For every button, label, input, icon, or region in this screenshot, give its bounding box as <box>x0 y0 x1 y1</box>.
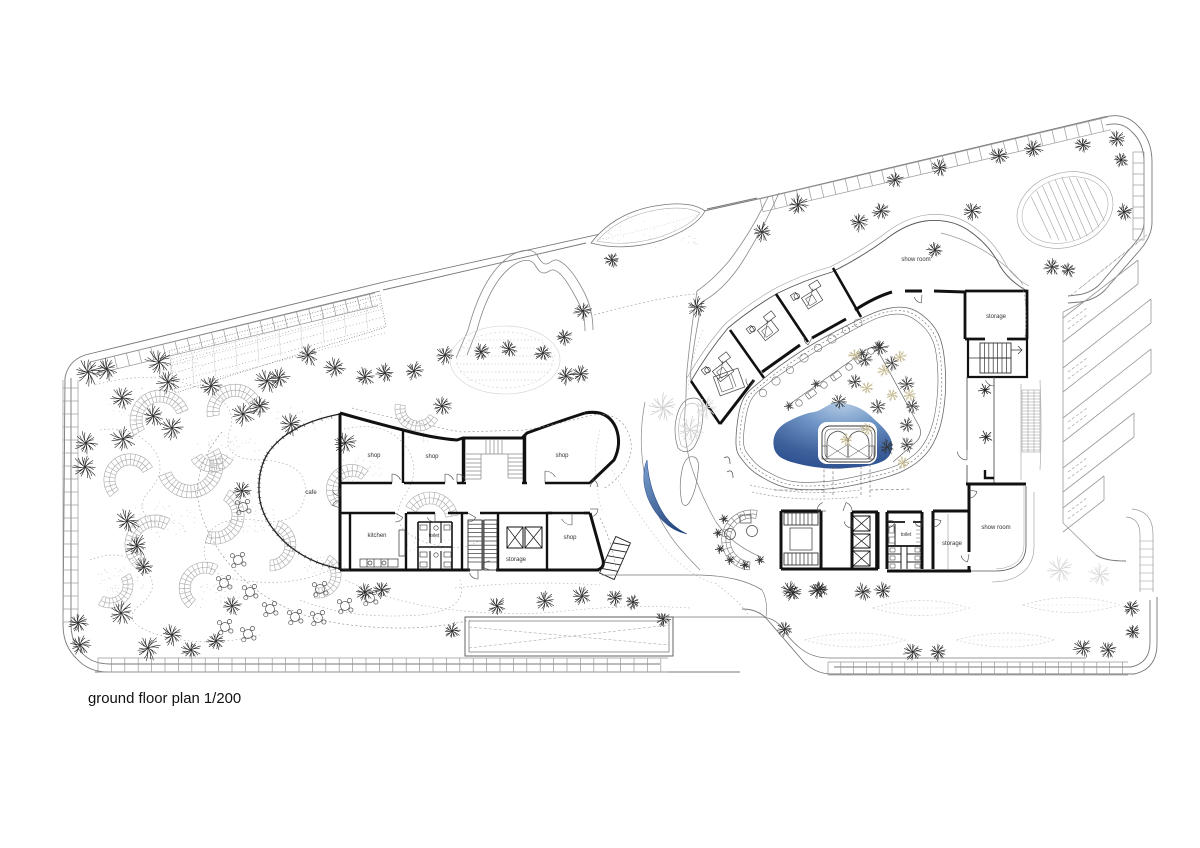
svg-text:storage: storage <box>942 541 963 547</box>
svg-text:shop: shop <box>425 454 439 460</box>
svg-text:shop: shop <box>563 535 577 541</box>
svg-text:show room: show room <box>901 257 930 263</box>
svg-text:ground floor plan 1/200: ground floor plan 1/200 <box>88 691 241 707</box>
svg-text:kitchen: kitchen <box>367 533 386 539</box>
svg-text:shop: shop <box>555 453 569 459</box>
svg-text:storage: storage <box>506 557 527 563</box>
svg-text:toilet: toilet <box>429 533 440 539</box>
svg-text:storage: storage <box>986 314 1007 320</box>
svg-text:cafe: cafe <box>305 490 317 496</box>
svg-text:toilet: toilet <box>901 532 912 538</box>
svg-text:show room: show room <box>981 525 1010 531</box>
svg-text:shop: shop <box>367 453 381 459</box>
